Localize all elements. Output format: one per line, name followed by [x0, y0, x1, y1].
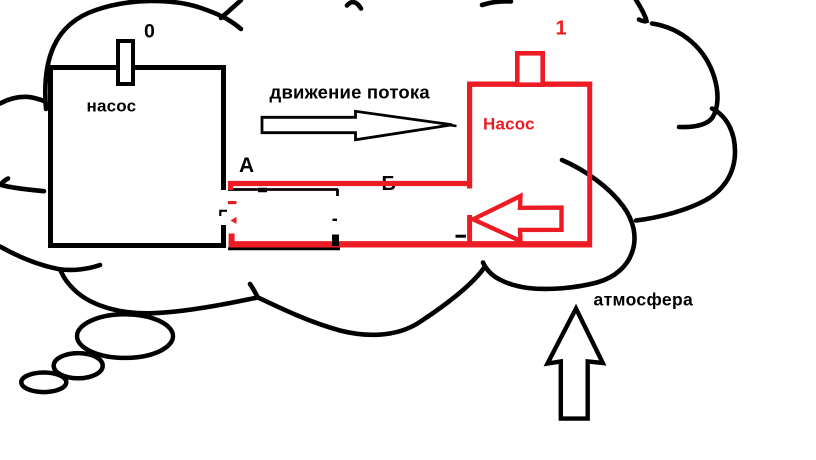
svg-text:Насос: Насос — [483, 115, 535, 134]
svg-text:А: А — [239, 154, 254, 177]
svg-text:насос: насос — [87, 97, 137, 116]
svg-text:1: 1 — [556, 17, 567, 39]
svg-text:движение потока: движение потока — [270, 82, 431, 103]
svg-text:атмосфера: атмосфера — [594, 290, 694, 310]
svg-text:0: 0 — [144, 20, 155, 42]
